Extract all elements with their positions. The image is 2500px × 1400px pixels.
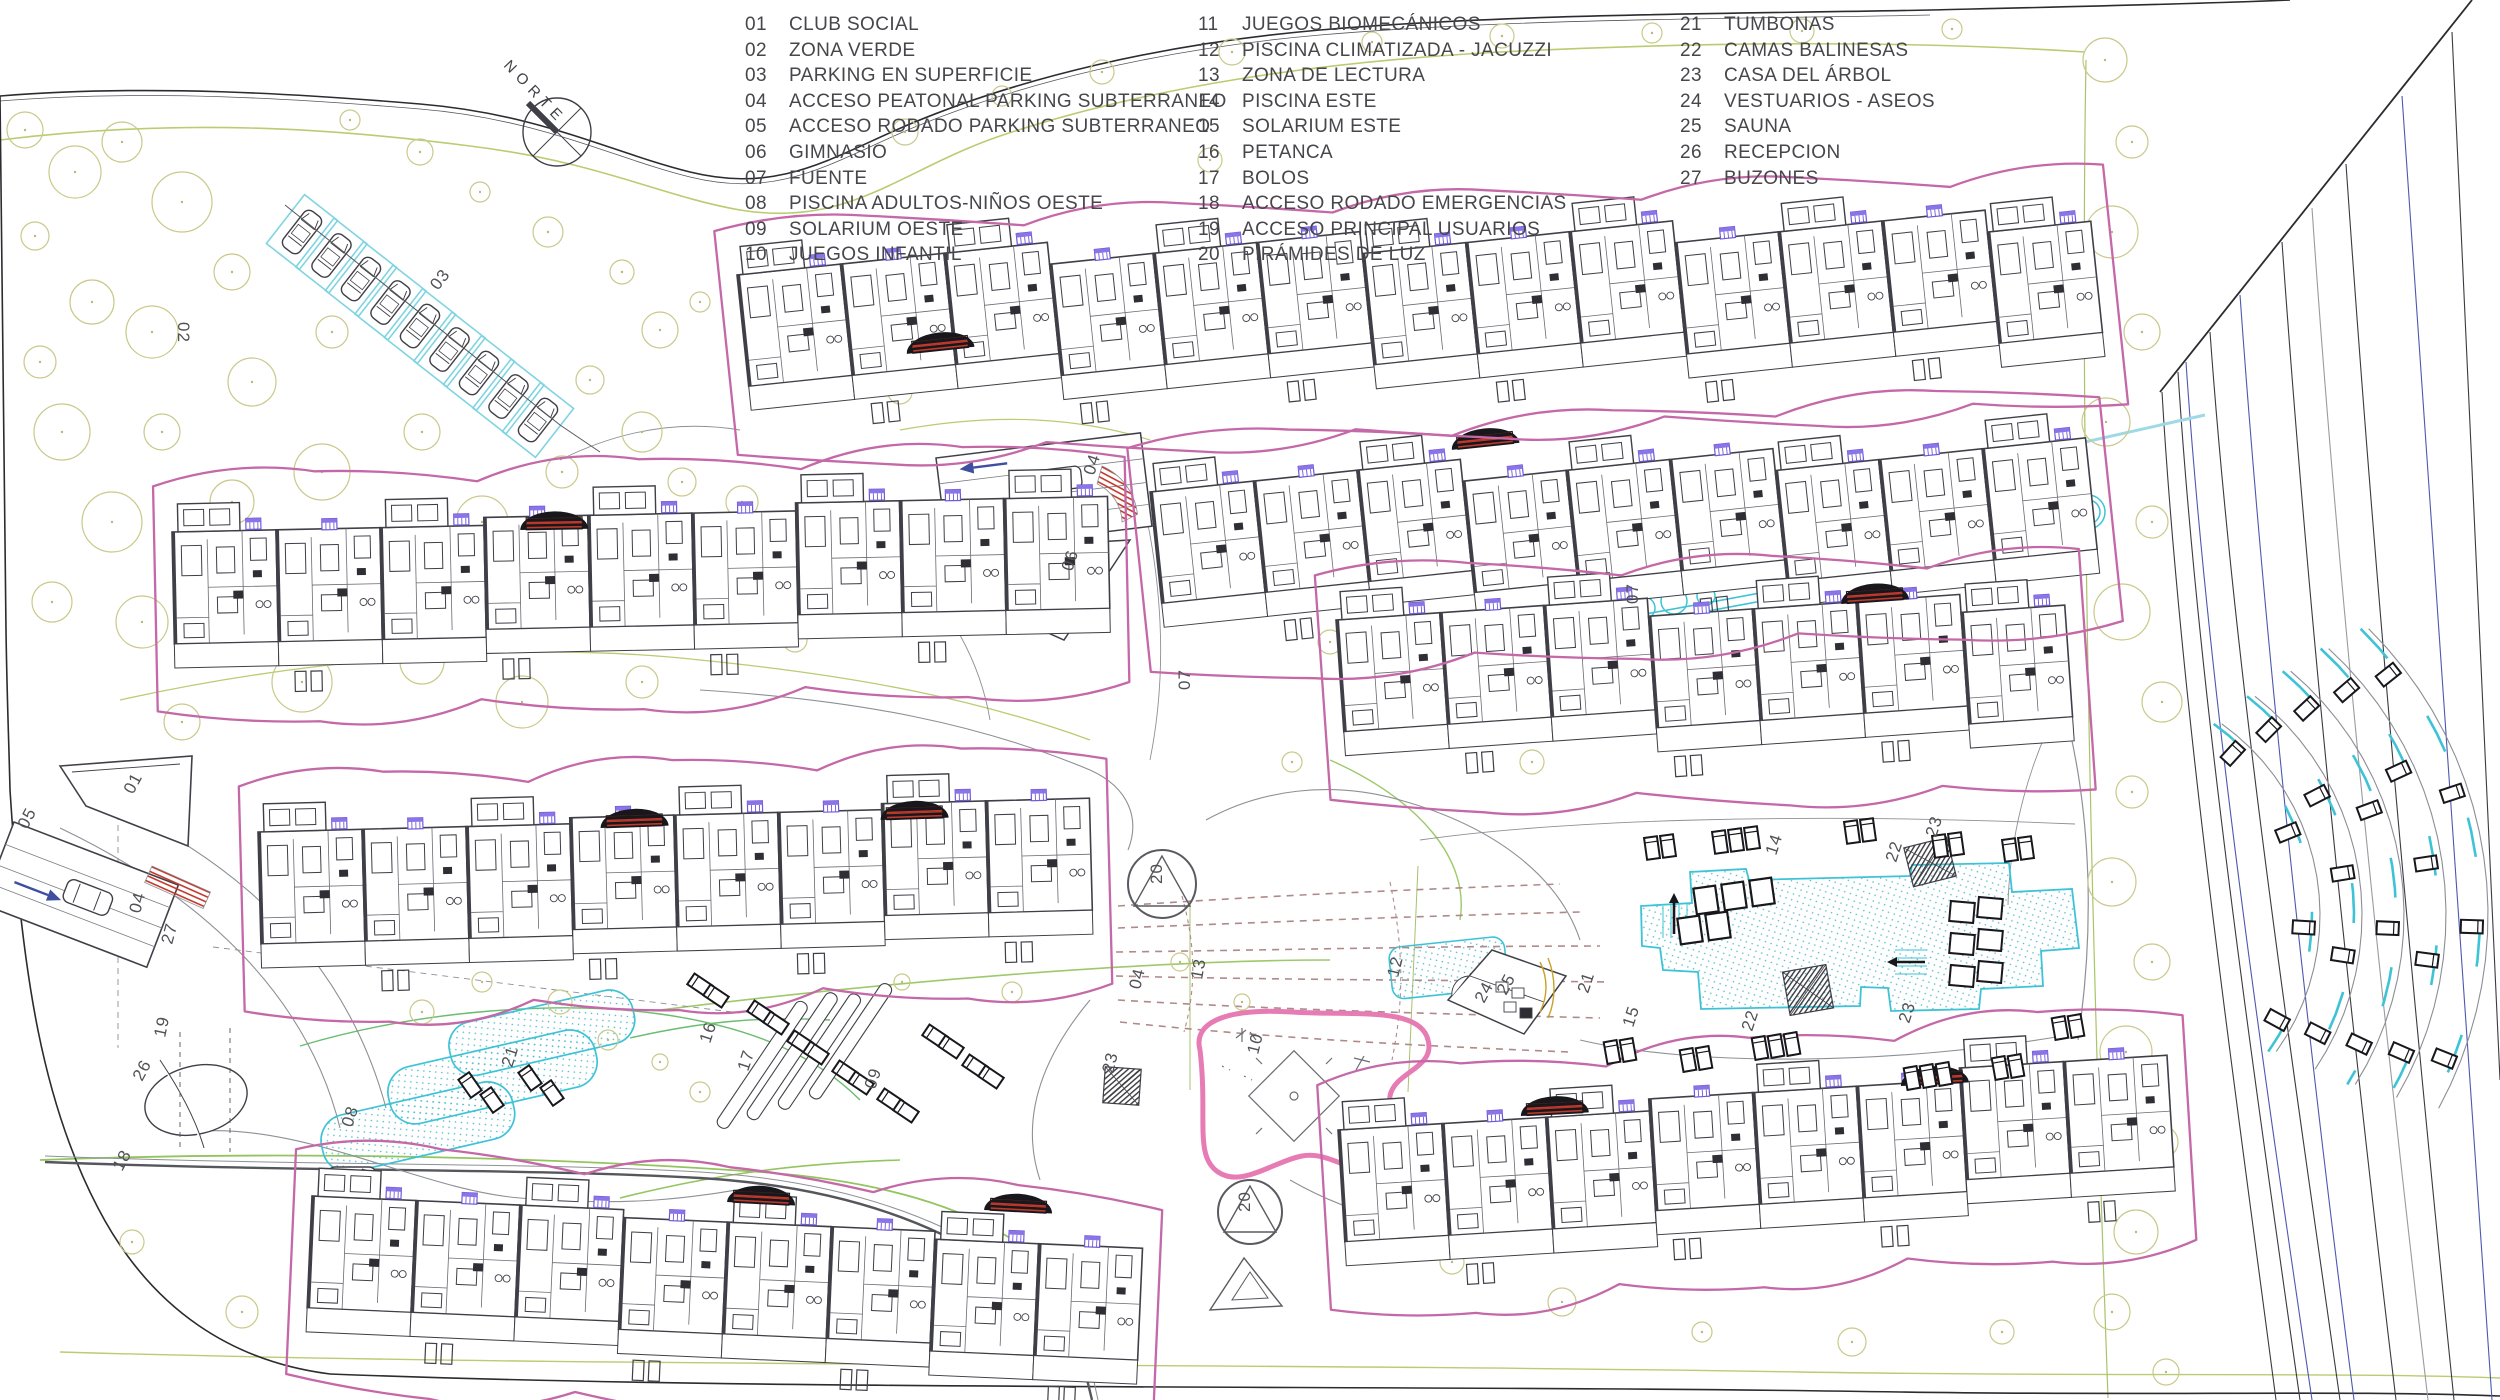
legend-item-number: 21 [1680,12,1724,38]
building-row [171,468,1111,694]
legend-item: 11JUEGOS BIOMECÁNICOS [1198,12,1567,38]
legend-item-label: PETANCA [1242,140,1333,166]
building-row [257,770,1094,994]
legend-item-label: CASA DEL ÁRBOL [1724,63,1892,89]
legend-item-number: 11 [1198,12,1242,38]
legend-item-number: 07 [745,166,789,192]
legend-item-label: CLUB SOCIAL [789,12,919,38]
light-pyramids [1128,850,1282,1310]
east-pool [1641,863,2079,1011]
north-compass: NORTE [500,57,591,166]
plan-marker: 22 [1738,1007,1763,1033]
legend-item-label: GIMNASIO [789,140,887,166]
legend-item-label: PISCINA ESTE [1242,89,1377,115]
legend-item: 02ZONA VERDE [745,38,1227,64]
plan-marker: 27 [158,921,182,946]
legend-item-number: 24 [1680,89,1724,115]
legend-item: 27BUZONES [1680,166,1935,192]
buildings-layer [171,106,2178,1400]
plan-marker: 14 [1762,831,1787,857]
legend-item-number: 23 [1680,63,1724,89]
plan-marker: 20 [1147,863,1166,884]
legend-column: 11JUEGOS BIOMECÁNICOS12PISCINA CLIMATIZA… [1198,12,1567,268]
legend-item: 24VESTUARIOS - ASEOS [1680,89,1935,115]
plan-marker: 21 [1574,969,1599,995]
legend-item-label: SAUNA [1724,114,1791,140]
plan-marker: 02 [174,322,193,343]
legend-item-number: 03 [745,63,789,89]
plan-marker: 15 [1619,1003,1644,1029]
legend-item: 10JUEGOS INFANTIL [745,242,1227,268]
legend-item-label: JUEGOS INFANTIL [789,242,962,268]
plan-marker: 13 [1187,957,1209,981]
legend-item: 12PISCINA CLIMATIZADA - JACUZZI [1198,38,1567,64]
legend-item: 08PISCINA ADULTOS-NIÑOS OESTE [745,191,1227,217]
legend-item: 01CLUB SOCIAL [745,12,1227,38]
legend-item-label: ACCESO PEATONAL PARKING SUBTERRANEO [789,89,1227,115]
legend-item-label: SOLARIUM OESTE [789,217,964,243]
legend-item-number: 04 [745,89,789,115]
legend-item-label: BOLOS [1242,166,1309,192]
legend-item-number: 27 [1680,166,1724,192]
building-row [1335,1027,2179,1291]
legend-item: 18ACCESO RODADO EMERGENCIAS [1198,191,1567,217]
legend-item-number: 15 [1198,114,1242,140]
legend-item-number: 02 [745,38,789,64]
legend-item-label: ACCESO RODADO EMERGENCIAS [1242,191,1567,217]
legend-item-number: 14 [1198,89,1242,115]
legend-item: 20PIRÁMIDES DE LUZ [1198,242,1567,268]
legend-item-label: PISCINA ADULTOS-NIÑOS OESTE [789,191,1103,217]
legend-item-label: PARKING EN SUPERFICIE [789,63,1032,89]
plan-marker: 07 [1623,583,1642,604]
legend-item: 25SAUNA [1680,114,1935,140]
plan-marker: 07 [1175,669,1194,690]
legend-column: 21TUMBONAS22CAMAS BALINESAS23CASA DEL ÁR… [1680,12,1935,191]
legend-item: 19ACCESO PRINCIPAL USUARIOS [1198,217,1567,243]
legend-item-label: PIRÁMIDES DE LUZ [1242,242,1426,268]
legend-item: 22CAMAS BALINESAS [1680,38,1935,64]
legend-item-number: 09 [745,217,789,243]
plan-marker: 03 [426,265,454,293]
legend-item: 16PETANCA [1198,140,1567,166]
legend-item-label: BUZONES [1724,166,1819,192]
legend-item-number: 16 [1198,140,1242,166]
site-plan-page: 0203010504271926180821161709040607072013… [0,0,2500,1400]
legend-item: 06GIMNASIO [745,140,1227,166]
legend-item: 17BOLOS [1198,166,1567,192]
legend-item: 26RECEPCION [1680,140,1935,166]
legend-item-label: TUMBONAS [1724,12,1835,38]
legend-item-label: JUEGOS BIOMECÁNICOS [1242,12,1481,38]
legend-item: 09SOLARIUM OESTE [745,217,1227,243]
legend-item-number: 10 [745,242,789,268]
legend-item: 13ZONA DE LECTURA [1198,63,1567,89]
legend-item-label: RECEPCION [1724,140,1841,166]
legend-item-number: 13 [1198,63,1242,89]
legend-item-number: 25 [1680,114,1724,140]
plan-marker: 10 [1243,1031,1266,1056]
legend-item-label: PISCINA CLIMATIZADA - JACUZZI [1242,38,1552,64]
legend-item-number: 08 [745,191,789,217]
legend-item: 03PARKING EN SUPERFICIE [745,63,1227,89]
legend-item-label: VESTUARIOS - ASEOS [1724,89,1935,115]
legend-item-label: ACCESO PRINCIPAL USUARIOS [1242,217,1540,243]
legend-item-number: 18 [1198,191,1242,217]
legend-item: 04ACCESO PEATONAL PARKING SUBTERRANEO [745,89,1227,115]
legend-item: 15SOLARIUM ESTE [1198,114,1567,140]
plan-marker: 26 [129,1056,156,1083]
plan-marker: 09 [861,1065,886,1091]
legend-item: 14PISCINA ESTE [1198,89,1567,115]
plan-marker: 20 [1235,1191,1254,1212]
legend-item-number: 01 [745,12,789,38]
plan-marker: 22 [1882,838,1907,864]
legend-item-number: 17 [1198,166,1242,192]
legend-item-number: 12 [1198,38,1242,64]
legend-item: 23CASA DEL ÁRBOL [1680,63,1935,89]
legend-item-number: 20 [1198,242,1242,268]
west-pool [302,985,654,1177]
legend-item-number: 05 [745,114,789,140]
legend-item-label: FUENTE [789,166,867,192]
plan-marker: 04 [1125,966,1148,991]
legend-item: 21TUMBONAS [1680,12,1935,38]
legend-item: 05ACCESO RODADO PARKING SUBTERRANEO [745,114,1227,140]
legend-item-label: ZONA DE LECTURA [1242,63,1425,89]
plan-marker: 18 [109,1146,136,1173]
legend-item-label: SOLARIUM ESTE [1242,114,1401,140]
legend-item-number: 22 [1680,38,1724,64]
plan-marker: 19 [150,1014,173,1038]
legend-item-label: ZONA VERDE [789,38,915,64]
legend-item-number: 26 [1680,140,1724,166]
legend-item-number: 06 [745,140,789,166]
legend-item-label: ACCESO RODADO PARKING SUBTERRANEO [789,114,1210,140]
legend-column: 01CLUB SOCIAL02ZONA VERDE03PARKING EN SU… [745,12,1227,268]
legend-item: 07FUENTE [745,166,1227,192]
legend-item-label: CAMAS BALINESAS [1724,38,1908,64]
legend-item-number: 19 [1198,217,1242,243]
